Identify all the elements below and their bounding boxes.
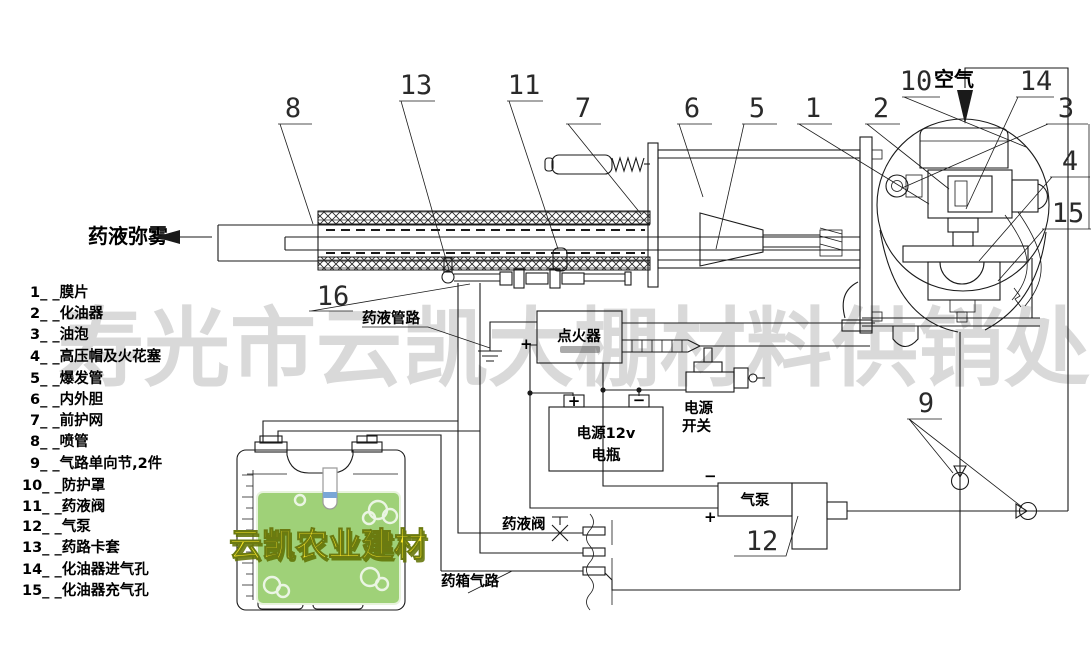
- legend-item: 13_ _药路卡套: [22, 538, 120, 556]
- handle-spring: [545, 155, 650, 174]
- pump-minus-sign: −: [704, 467, 717, 485]
- callout-7: 7: [566, 93, 641, 214]
- svg-text:13: 13: [400, 70, 433, 101]
- callout-9: 9: [907, 388, 1022, 507]
- svg-text:2: 2: [873, 93, 889, 124]
- svg-text:1: 1: [805, 93, 821, 124]
- legend-item: 3_ _油泡: [30, 325, 89, 343]
- pump-plus-sign: +: [704, 508, 717, 526]
- diagram-page: 寿光市云凯大棚材料供销处 寿光市云凯大棚材料供销处: [0, 0, 1092, 662]
- air-label: 空气: [934, 67, 974, 91]
- dip-tube: [323, 468, 337, 509]
- legend-item: 1_ _膜片: [30, 283, 89, 301]
- liquid-valve-label: 药液阀: [502, 515, 546, 533]
- legend-item: 10_ _防护罩: [22, 476, 105, 494]
- callout-1: 1: [797, 93, 929, 204]
- igniter-plus-sign: +: [520, 335, 533, 353]
- igniter-label: 点火器: [557, 328, 601, 345]
- tank-air-line-label: 药箱气路: [441, 572, 499, 590]
- svg-text:12: 12: [746, 526, 779, 557]
- battery-plus-sign: +: [568, 392, 581, 410]
- svg-text:4: 4: [1062, 146, 1078, 177]
- svg-text:6: 6: [684, 93, 700, 124]
- legend-item: 8_ _喷管: [30, 432, 89, 450]
- protective-cover-circle: [877, 119, 1049, 291]
- liquid-line-label: 药液管路: [362, 309, 420, 327]
- legend-item: 4_ _高压帽及火花塞: [30, 347, 162, 365]
- net-band-bottom: [318, 257, 650, 270]
- net-band-top: [318, 211, 650, 224]
- battery-label-1: 电源12v: [577, 424, 636, 442]
- legend-item: 7_ _前护网: [30, 411, 103, 429]
- legend-item: 6_ _内外胆: [30, 390, 104, 408]
- switch-label-2: 开关: [682, 417, 711, 435]
- liquid-valve-icon: [552, 517, 568, 541]
- callout-12: 12: [734, 516, 798, 557]
- legend-item: 11_ _药液阀: [22, 497, 105, 515]
- callout-14: 14: [966, 66, 1054, 209]
- sprayer-schematic: 寿光市云凯大棚材料供销处 寿光市云凯大棚材料供销处: [0, 0, 1092, 662]
- legend-item: 5_ _爆发管: [30, 369, 103, 387]
- svg-text:14: 14: [1020, 66, 1053, 97]
- brand-label-text: 云凯农业建材: [229, 525, 427, 564]
- pump-label: 气泵: [740, 491, 770, 509]
- svg-text:11: 11: [508, 70, 541, 101]
- chemical-tank: 云凯农业建材 云凯农业建材: [229, 436, 429, 610]
- svg-text:9: 9: [918, 388, 934, 419]
- callout-6: 6: [677, 93, 712, 197]
- legend-item: 2_ _化油器: [30, 304, 104, 322]
- switch-label-1: 电源: [684, 399, 713, 417]
- legend-item: 9_ _气路单向节,2件: [30, 454, 163, 472]
- svg-text:15: 15: [1052, 198, 1085, 229]
- svg-text:10: 10: [900, 66, 933, 97]
- callout-8: 8: [278, 93, 313, 224]
- svg-text:5: 5: [749, 93, 765, 124]
- callout-13: 13: [399, 70, 449, 270]
- legend-item: 14_ _化油器进气孔: [22, 560, 149, 578]
- svg-text:8: 8: [285, 93, 301, 124]
- igniter-subtext-smudge: [560, 346, 600, 353]
- legend-item: 15_ _化油器充气孔: [22, 581, 149, 599]
- battery-label-2: 电瓶: [592, 446, 621, 464]
- legend-item: 12_ _气泵: [22, 517, 91, 535]
- battery: + − 电源12v 电瓶: [549, 391, 663, 471]
- spray-mist: 药液弥雾: [88, 224, 212, 248]
- svg-text:7: 7: [575, 93, 591, 124]
- svg-text:3: 3: [1058, 93, 1074, 124]
- battery-minus-sign: −: [633, 391, 646, 409]
- spray-mist-label: 药液弥雾: [88, 224, 169, 248]
